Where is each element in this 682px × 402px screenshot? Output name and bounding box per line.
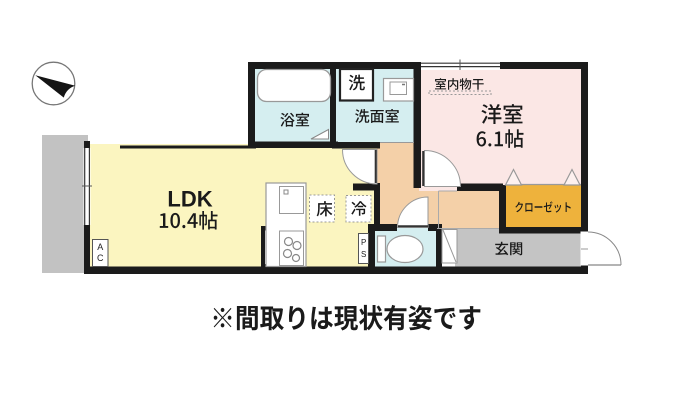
svg-text:C: C <box>97 253 104 263</box>
svg-text:S: S <box>361 250 366 259</box>
svg-text:P: P <box>361 238 366 247</box>
svg-text:LDK: LDK <box>167 187 212 212</box>
svg-text:A: A <box>97 242 103 252</box>
